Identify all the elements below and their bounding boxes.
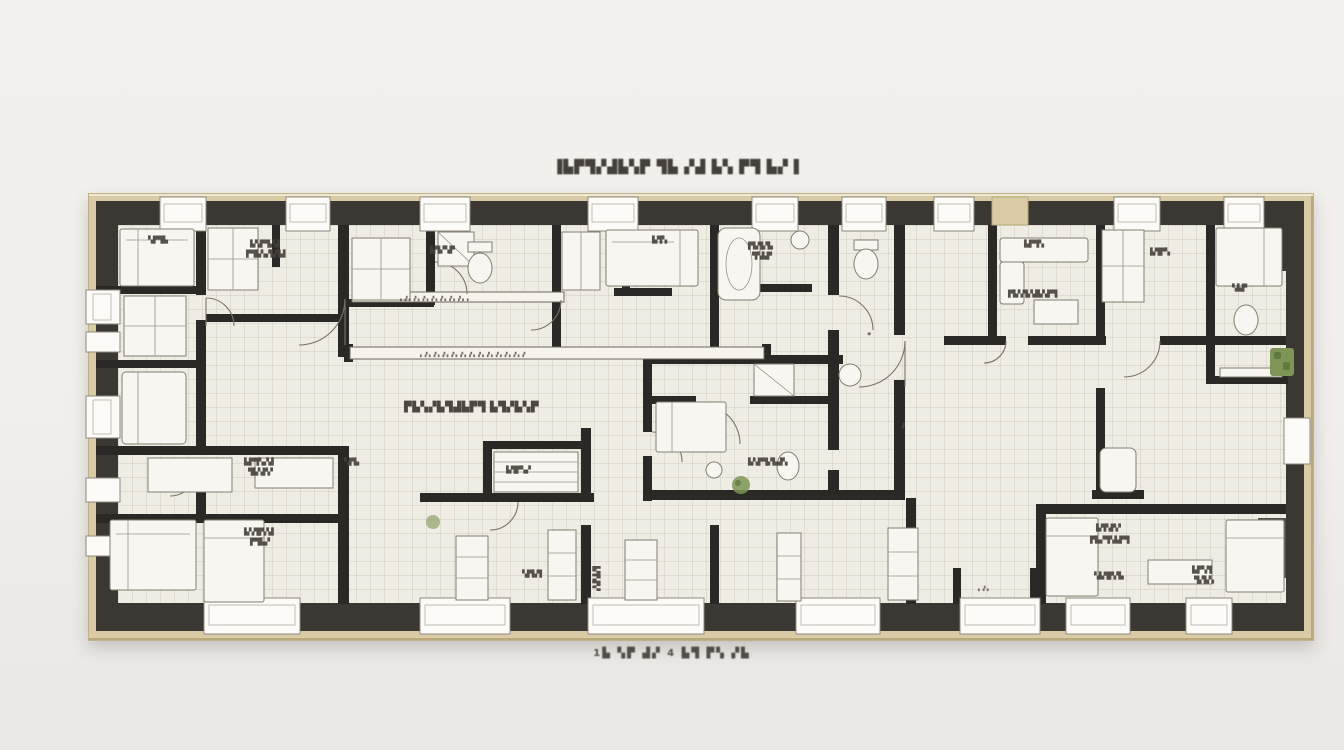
room-label: ▛▜▙▚▞▙▜▟ <box>245 249 286 258</box>
bed <box>1046 518 1098 596</box>
bathtub <box>1100 448 1136 492</box>
sink <box>791 231 809 249</box>
room-label: ▜▚▙▛ <box>752 251 773 260</box>
room-label: ▙▚▜▛▞▟ <box>243 527 274 536</box>
room-label: ▗▖ <box>866 331 872 336</box>
planter-icon <box>1270 348 1294 376</box>
room-label: ▚▙▛ <box>1231 283 1248 292</box>
toilet <box>1234 305 1258 335</box>
room-label: ▜▙▚▛▞ <box>248 467 274 476</box>
ruler-text: ▖▗▘▖▗▘▖▗▘▖▗▘▖▗▘▖▗▘▖▗▘▖▗▘▖▗▘▖▗▘▖▗▘▖▗▘ <box>419 351 527 358</box>
bathtub <box>718 228 760 300</box>
room-label: ▚▛▜▙ <box>147 235 169 244</box>
room-label: ▛▙▞▜▚▙▛▜ <box>1089 535 1130 544</box>
plant-icon <box>426 515 440 529</box>
room-label: ▙▛▚▜ <box>1191 565 1213 574</box>
bed <box>1216 228 1282 286</box>
plant-icon <box>732 476 750 494</box>
bed <box>1226 520 1284 592</box>
top-wall-tan-block <box>992 197 1028 225</box>
room-label: ▙▚▛▜▞▙▟▚ <box>747 457 788 466</box>
room-label: ▙▛▜▚▞▟ <box>243 457 274 466</box>
round-table <box>839 364 861 386</box>
room-label: ▚▛▙ <box>343 457 360 466</box>
room-label: ▚▙▜▛▞▙ <box>1093 571 1124 580</box>
sofa <box>1000 238 1088 262</box>
toilet <box>854 249 878 279</box>
hall-label: ▛▙▚▞▙▜▟▙▛▜ ▙▜▞▙▚▛ <box>403 400 539 413</box>
room-label: ▛▙▜▞▙ <box>747 241 774 250</box>
bed <box>656 402 726 452</box>
sofa <box>122 372 186 444</box>
tick-text: ▖▗▘▖▗▘▖▗▘▖▗▘▖▗▘▖▗▘▖▗▘▖▗ <box>399 295 469 302</box>
room-label: ▛▙▚▜▞▟▙▚▛▜ <box>1007 289 1058 298</box>
desk <box>148 458 232 492</box>
room-label: ▛▜▙▞ <box>249 537 271 546</box>
room-label: ▙▜▛▚▞ <box>505 465 532 474</box>
room-label: ▙▜▚ <box>651 235 668 244</box>
room-label: ▙▛▜▚ <box>1023 239 1045 248</box>
room-label: ▗▘ <box>900 422 906 429</box>
toilet <box>777 452 799 480</box>
room-label: ▙▜▚▛▞ <box>592 565 601 592</box>
wardrobe-row <box>456 528 918 601</box>
floor-plan-drawing: ▙▚▛▜▞▟ ▛▜▙▚▞▙▜▟ ▚▛▜▙ ▙▜▞▚▛ ▛▙▜▞▙ ▜▚▙▛ ▙▛… <box>0 0 1344 750</box>
room-label: ▚▛▙▜ <box>521 569 543 578</box>
toilet <box>468 253 492 283</box>
sink <box>706 462 722 478</box>
furniture <box>110 228 1284 602</box>
room-label: ▙▚▛▜▞▟ <box>249 239 280 248</box>
bed <box>110 520 196 590</box>
room-label: ▙▜▚▛▞ <box>1095 523 1122 532</box>
screenshot-stage: ▐▙▛▜▞▟▙▚▛ ▜▙ ▞▟ ▙▚ ▛▜ ▙▞▐ 1▙ ▚▛ ▟▞ 4 ▙▜ … <box>0 0 1344 750</box>
room-label: ▖▗▘▖ <box>977 585 990 592</box>
coffee-table <box>1034 300 1078 324</box>
toilet-tank <box>468 242 492 252</box>
room-label: ▙▜▛▚ <box>1149 247 1171 256</box>
room-label: ▙▜▞▚▛ <box>429 245 456 254</box>
room-label: ▜▞▙▚ <box>1194 575 1215 584</box>
